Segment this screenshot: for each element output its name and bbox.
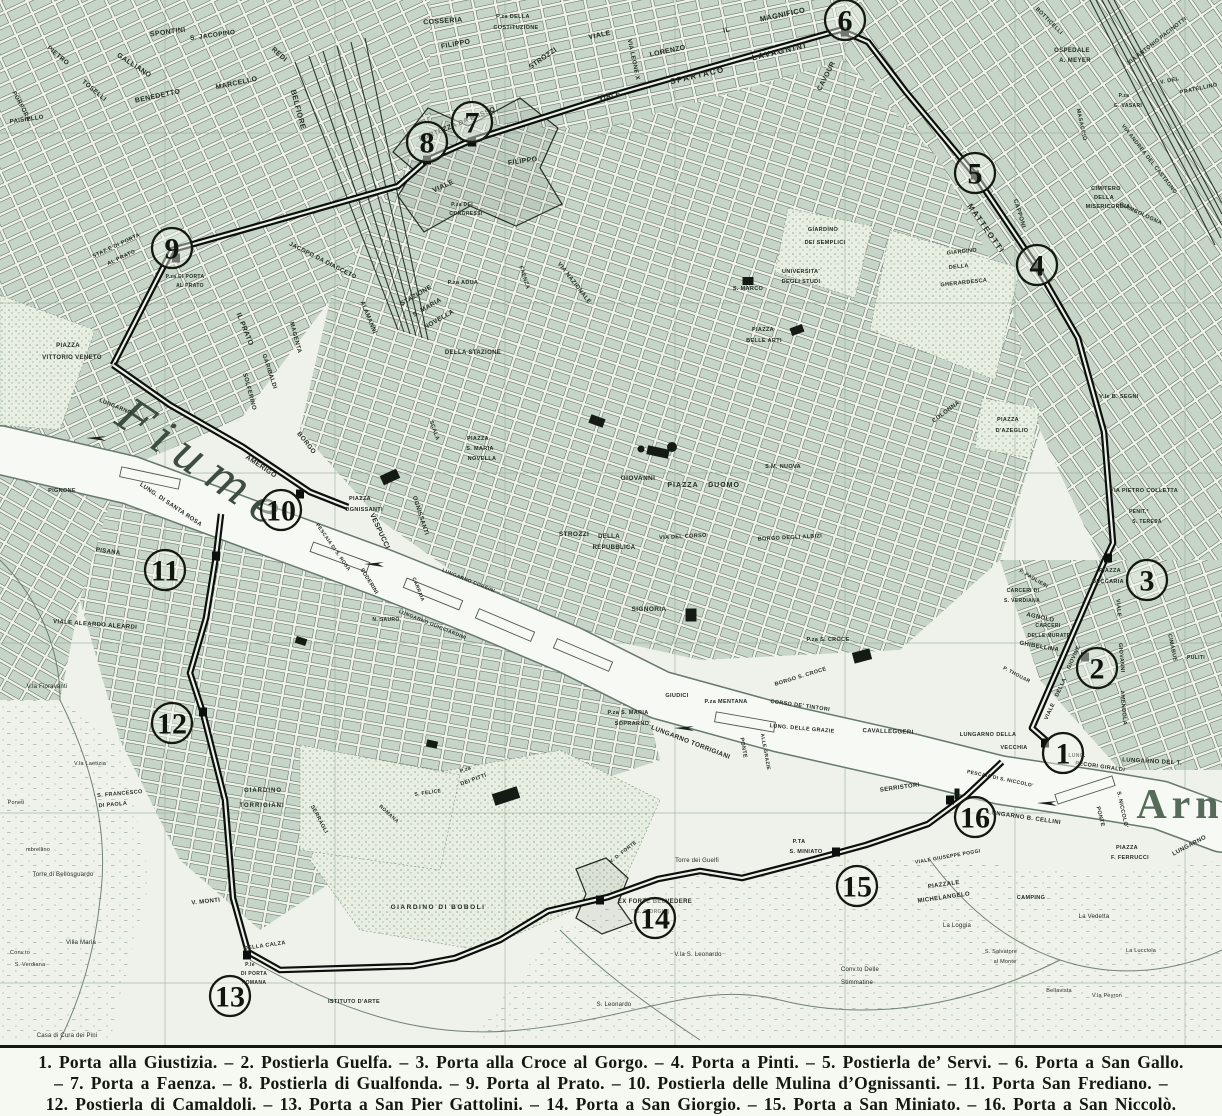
map-label: PENIT.°	[1129, 509, 1149, 515]
map-label: F. FERRUCCI	[1111, 855, 1149, 861]
map-label: PIAZZA	[752, 327, 774, 333]
map-label: VIA PIETRO COLLETTA	[1110, 488, 1178, 494]
gate-marker-15: 15	[837, 866, 877, 906]
map-label: V.la Laetizia	[74, 761, 107, 767]
map-label: Torre di Bellosguardo	[33, 872, 94, 878]
svg-text:5: 5	[968, 158, 983, 191]
map-label: P.za DEI	[451, 202, 473, 208]
map-label: DI PORTA	[241, 971, 267, 977]
map-label: PIAZZA	[997, 417, 1019, 423]
map-label: al Monte	[994, 959, 1017, 965]
map-label: LUNGARNO DELLA	[960, 732, 1017, 738]
gate-marker-5: 5	[955, 153, 995, 193]
map-label: PIAZZA	[467, 436, 489, 442]
gate-marker-7: 7	[452, 102, 492, 142]
gate-tower-icon	[832, 848, 840, 857]
map-label: Bellavista	[1046, 988, 1072, 994]
map-label: DELLA	[1094, 195, 1114, 201]
svg-text:4: 4	[1030, 250, 1045, 283]
map-label: MISERICORDIA	[1086, 204, 1131, 210]
map-label: S. MARCO	[733, 286, 764, 292]
map-label: PULITI	[1187, 655, 1205, 661]
map-label: GIARDINO DI BOBOLI	[391, 904, 486, 911]
map-label: P.TA	[793, 839, 806, 845]
map-label: mbrellino	[26, 847, 50, 853]
map-label: S. VERDIANA	[1004, 598, 1040, 604]
map-label: Conv.to	[10, 950, 30, 956]
gate-tower-icon	[212, 552, 220, 561]
map-label: DEGLI STUDI	[782, 279, 821, 285]
map-label: PIGNONE	[48, 488, 76, 494]
gate-marker-10: 10	[261, 490, 301, 530]
map-label: DELLA	[598, 534, 620, 540]
map-label: P.za DELLA	[496, 14, 530, 20]
gate-marker-16: 16	[955, 797, 995, 837]
map-label: A. MEYER	[1059, 58, 1091, 64]
map-label: S. MINIATO	[790, 849, 823, 855]
map-label: La Lucciola	[1126, 948, 1157, 954]
legend-line-2: – 7. Porta a Faenza. – 8. Postierla di G…	[0, 1073, 1222, 1094]
map-label: V.la Peyron	[1092, 993, 1122, 999]
svg-text:11: 11	[151, 555, 179, 588]
map-label: P.za ADUA	[448, 280, 479, 286]
landmark-building	[686, 609, 697, 622]
map-label: BELLE ARTI	[746, 338, 782, 344]
legend-line-3: 12. Postierla di Camaldoli. – 13. Porta …	[0, 1094, 1222, 1115]
map-label: La Vedetta	[1079, 914, 1110, 920]
gate-marker-14: 14	[635, 898, 675, 938]
map-label: D'AZEGLIO	[996, 428, 1029, 434]
map-label: P.za MENTANA	[704, 699, 747, 705]
map-label: SIGNORIA	[632, 606, 667, 613]
map-label: CONGRESSI	[449, 211, 482, 217]
map-label: Conv.to Delle	[841, 967, 880, 973]
gate-marker-9: 9	[152, 228, 192, 268]
map-label: PIAZZA	[1116, 845, 1138, 851]
gate-tower-icon	[199, 708, 207, 717]
svg-text:3: 3	[1140, 565, 1155, 598]
gate-marker-11: 11	[145, 550, 185, 590]
map-label: S. MARIA	[466, 446, 494, 452]
map-label: COSTITUZIONE	[493, 25, 538, 31]
landmark-building	[743, 277, 754, 285]
map-label: DELLA STAZIONE	[445, 350, 501, 356]
svg-text:15: 15	[842, 871, 872, 904]
gate-marker-12: 12	[152, 703, 192, 743]
map-frame: SPONTINIS. JACOPINOGALLIANOPIETROTOSELLI…	[0, 0, 1222, 1116]
map-label: P.za S. CROCE	[807, 637, 850, 643]
map-label: Stimmatine	[841, 980, 873, 986]
map-label: Villa Maria	[66, 940, 97, 946]
svg-text:9: 9	[165, 233, 180, 266]
map-label: DELLE MURATE	[1028, 633, 1071, 639]
map-label: S. Salvatore	[985, 949, 1017, 955]
map-label: V.la S. Leonardo	[674, 952, 722, 958]
map-label: CARCERI	[1035, 623, 1060, 629]
map-label: S.M. NUOVA	[765, 464, 801, 470]
map-label: P.za S. MARIA	[607, 710, 648, 716]
map-label: VECCHIA	[1000, 745, 1027, 751]
legend: 1. Porta alla Giustizia. – 2. Postierla …	[0, 1045, 1222, 1116]
legend-line-1: 1. Porta alla Giustizia. – 2. Postierla …	[0, 1052, 1222, 1073]
gate-marker-8: 8	[407, 122, 447, 162]
svg-text:13: 13	[215, 981, 245, 1014]
map-label: V.le B. SEGNI	[1099, 394, 1139, 400]
map-label: OSPEDALE	[1054, 48, 1090, 54]
map-label: BECCARIA	[1092, 579, 1124, 585]
svg-text:10: 10	[266, 495, 296, 528]
map-label: CAMPING	[1017, 895, 1045, 901]
map-label: GIOVANNI	[621, 475, 655, 482]
map-label: PIAZZA	[56, 343, 80, 349]
map-label: Casa di Cura dei Pini	[37, 1033, 98, 1039]
gate-marker-1: 1	[1043, 733, 1083, 773]
map-label: P.za DI PORTA	[166, 274, 205, 280]
gate-marker-2: 2	[1077, 648, 1117, 688]
map-label: OGNISSANTI	[345, 507, 383, 513]
map-label: Torre dei Guelfi	[675, 858, 719, 864]
map-label: La Loggia	[943, 923, 972, 929]
map-label: PIAZZA	[667, 482, 698, 489]
svg-text:16: 16	[960, 802, 990, 835]
map-label: GIARDINO	[244, 788, 282, 794]
map-label: GIARDINO	[808, 227, 839, 233]
map-label: SOPRARNO	[615, 721, 650, 727]
map-label: CIMITERO	[1091, 186, 1121, 192]
map-label: DEI SEMPLICI	[805, 240, 846, 246]
map-label: Arno	[1136, 782, 1222, 828]
florence-walls-map: SPONTINIS. JACOPINOGALLIANOPIETROTOSELLI…	[0, 0, 1222, 1045]
gate-marker-3: 3	[1127, 560, 1167, 600]
map-label: TORRIGIANI	[239, 803, 284, 809]
map-label: STROZZI	[559, 531, 589, 538]
svg-text:12: 12	[157, 708, 187, 741]
map-label: PIAZZA	[349, 496, 371, 502]
map-label: V.la Fioravanti	[27, 684, 68, 690]
map-label: S. TERESA	[1132, 519, 1162, 525]
svg-text:7: 7	[465, 107, 480, 140]
gate-tower-icon	[946, 796, 954, 805]
map-label: ISTITUTO D'ARTE	[328, 999, 380, 1005]
map-label: REPUBBLICA	[593, 545, 636, 551]
gate-marker-13: 13	[210, 976, 250, 1016]
map-label: N. SAURO	[372, 617, 399, 623]
dome-icon	[667, 442, 677, 452]
map-label: P.za	[1119, 93, 1130, 99]
map-label: VITTORIO VENETO	[42, 355, 102, 361]
svg-text:8: 8	[420, 127, 435, 160]
map-label: DUOMO	[708, 482, 740, 489]
gate-marker-4: 4	[1017, 245, 1057, 285]
map-label: GIUDICI	[665, 693, 688, 699]
svg-text:1: 1	[1056, 738, 1071, 771]
dome-icon	[638, 446, 645, 453]
map-label: S. Verdiana	[15, 962, 46, 968]
map-label: PIAZZA	[1099, 568, 1121, 574]
map-label: G. VASARI	[1114, 103, 1143, 109]
svg-text:6: 6	[838, 5, 853, 38]
map-label: UNIVERSITA'	[782, 269, 820, 275]
svg-text:2: 2	[1090, 653, 1105, 686]
map-label: NOVELLA	[468, 456, 497, 462]
map-label: S. Leonardo	[597, 1002, 632, 1008]
map-label: CARCERI DI	[1007, 588, 1040, 594]
map-label: Poneti	[8, 800, 25, 806]
gate-tower-icon	[1104, 554, 1112, 563]
gate-tower-icon	[596, 896, 604, 905]
gate-marker-6: 6	[825, 0, 865, 40]
map-label: P.le	[245, 962, 255, 968]
svg-text:14: 14	[640, 903, 670, 936]
map-label: AL PRATO	[176, 283, 204, 289]
